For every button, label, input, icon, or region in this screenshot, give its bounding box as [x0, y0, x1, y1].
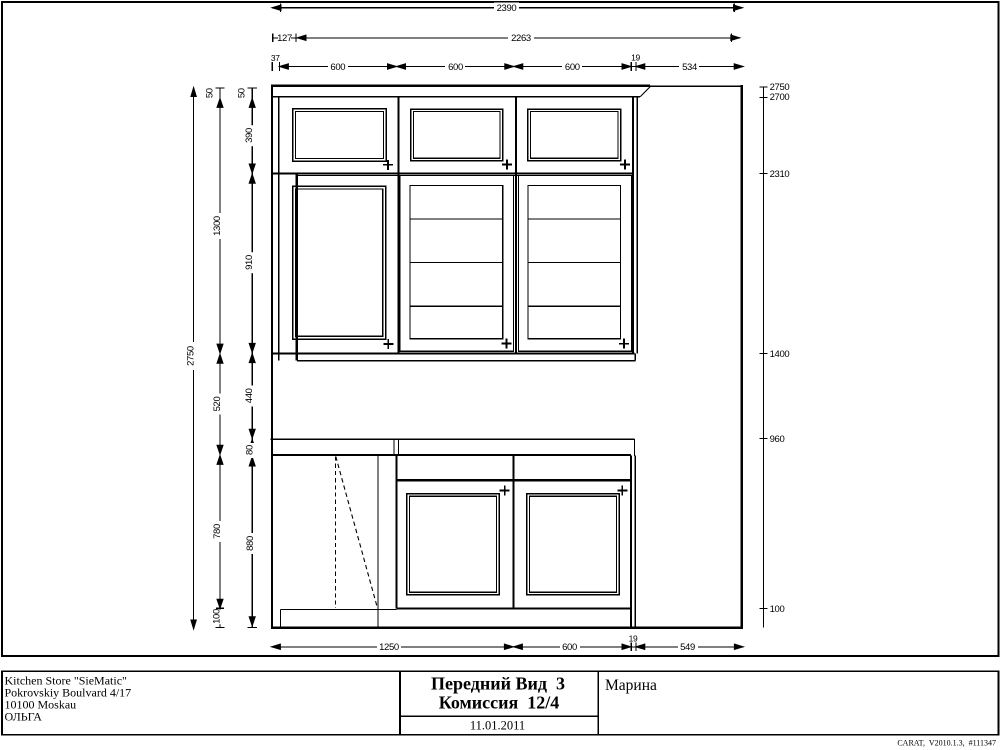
svg-text:520: 520	[212, 397, 223, 412]
svg-text:2390: 2390	[497, 3, 517, 14]
svg-text:CARAT, V2010.1.3, #111347: CARAT, V2010.1.3, #111347	[897, 739, 996, 748]
svg-text:960: 960	[770, 434, 785, 445]
svg-text:600: 600	[562, 642, 577, 653]
svg-text:440: 440	[244, 388, 255, 403]
svg-text:19: 19	[631, 53, 640, 63]
svg-text:50: 50	[205, 88, 216, 98]
svg-text:534: 534	[682, 62, 697, 73]
svg-text:2700: 2700	[770, 92, 790, 103]
svg-text:1400: 1400	[770, 349, 790, 360]
svg-text:127: 127	[277, 33, 292, 44]
svg-text:2263: 2263	[511, 33, 531, 44]
svg-text:600: 600	[330, 62, 345, 73]
svg-text:11.01.2011: 11.01.2011	[470, 719, 525, 733]
svg-text:Передний Вид 3: Передний Вид 3	[431, 674, 565, 694]
svg-text:50: 50	[237, 88, 248, 98]
svg-text:2310: 2310	[770, 169, 790, 180]
svg-text:549: 549	[680, 642, 695, 653]
svg-text:19: 19	[629, 634, 638, 644]
svg-text:1250: 1250	[379, 642, 399, 653]
svg-text:910: 910	[244, 255, 255, 270]
svg-text:80: 80	[245, 445, 256, 455]
svg-text:Марина: Марина	[605, 677, 657, 694]
svg-text:600: 600	[565, 62, 580, 73]
svg-text:100: 100	[212, 609, 223, 624]
svg-text:600: 600	[448, 62, 463, 73]
svg-text:1300: 1300	[212, 216, 223, 236]
svg-text:100: 100	[770, 604, 785, 615]
svg-text:2750: 2750	[186, 346, 197, 366]
svg-text:880: 880	[245, 536, 256, 551]
svg-text:Комиссия 12/4: Комиссия 12/4	[439, 693, 560, 713]
svg-text:ОЛЬГА: ОЛЬГА	[5, 710, 43, 724]
svg-text:37: 37	[271, 53, 280, 63]
svg-text:780: 780	[212, 524, 223, 539]
svg-text:390: 390	[244, 128, 255, 143]
